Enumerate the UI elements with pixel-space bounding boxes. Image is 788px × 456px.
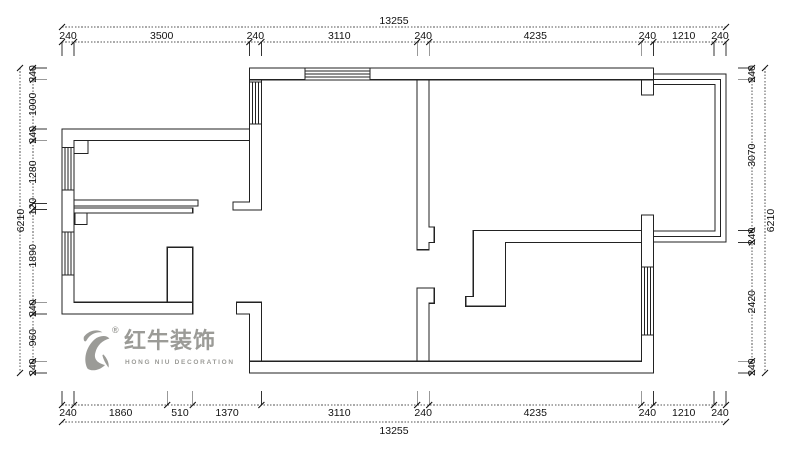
dimension-label: 120 [27,198,39,216]
wardrobe-gamma-wall [466,231,642,307]
dimension-label: 13255 [379,15,408,27]
window-left-lower [62,232,74,275]
dimension-label: 3070 [746,143,758,167]
dimension-label: 510 [171,407,189,419]
dimension-label: 1280 [27,160,39,184]
dimension-label: 240 [746,65,758,83]
brand-name-en: HONG NIU DECORATION [125,359,235,366]
top-right-pier [641,80,653,95]
middle-wall-lower [417,288,434,361]
registered-mark-icon: ® [112,325,119,335]
dimension-label: 1890 [27,244,39,268]
dimension-label: 2420 [746,290,758,314]
dimension-label: 240 [27,299,39,317]
dimension-label: 3110 [328,30,351,42]
dimension-label: 240 [414,30,432,42]
railing-line [653,85,715,231]
dimension-total-right: 6210 [762,65,777,376]
dimension-label: 3500 [150,30,174,42]
dimension-total-bottom: 13255 [59,419,729,437]
dimension-label: 240 [59,30,77,42]
dimension-label: 240 [27,358,39,376]
dimension-label: 240 [711,407,729,419]
dimension-label: 1210 [672,30,696,42]
brand-logo: ® 红牛装饰 HONG NIU DECORATION [78,320,248,376]
dimension-label: 240 [27,65,39,83]
dimension-chain-top: 2403500240311024042352401210240 [59,30,729,56]
floorplan-drawing: 1325524035002403110240423524012102402401… [0,0,788,456]
dimension-label: 240 [27,126,39,144]
dimension-label: 240 [639,30,657,42]
window-left-upper [62,148,74,190]
window-kitchen-east [249,82,261,124]
dimension-label: 1860 [109,407,133,419]
window-right [641,267,653,335]
dimension-chain-left: 240100024012801201890240960240 [27,65,47,376]
dimension-label: 240 [746,228,758,246]
dimension-label: 3110 [328,407,351,419]
dimension-label: 6210 [765,209,777,233]
dimension-label: 1000 [27,93,39,117]
railing-line [653,79,720,236]
dimension-label: 4235 [524,407,548,419]
dimension-total-top: 13255 [59,15,729,30]
window-top [305,68,370,80]
dimension-label: 240 [414,407,432,419]
left-wing-pier [167,247,193,302]
floorplan-page: 1325524035002403110240423524012102402401… [0,0,788,456]
left-wing-outer-wall [62,129,249,314]
middle-wall-upper [417,80,434,250]
dimension-total-left: 6210 [15,65,27,376]
brand-name-cn: 红牛装饰 [124,330,216,352]
dimension-label: 6210 [15,209,27,233]
mid-thin-wall-lower [74,208,193,213]
dimension-label: 1210 [672,407,696,419]
dimension-label: 240 [59,407,77,419]
dimension-label: 1370 [215,407,239,419]
balcony-railing [653,74,726,242]
dimension-chain-right: 24030702402420240 [738,65,758,376]
dimension-label: 4235 [524,30,548,42]
dimension-label: 240 [711,30,729,42]
dimension-label: 240 [247,30,265,42]
mid-thin-wall-upper [74,200,198,206]
lower-left-nub [75,213,87,225]
bull-icon [80,328,116,372]
dimension-label: 240 [639,407,657,419]
dimension-label: 960 [27,329,39,347]
dimension-label: 13255 [379,425,408,437]
dimension-chain-bottom: 24018605101370311024042352401210240 [59,391,729,419]
kitchen-corner-nub [74,141,88,154]
dimension-label: 240 [746,358,758,376]
